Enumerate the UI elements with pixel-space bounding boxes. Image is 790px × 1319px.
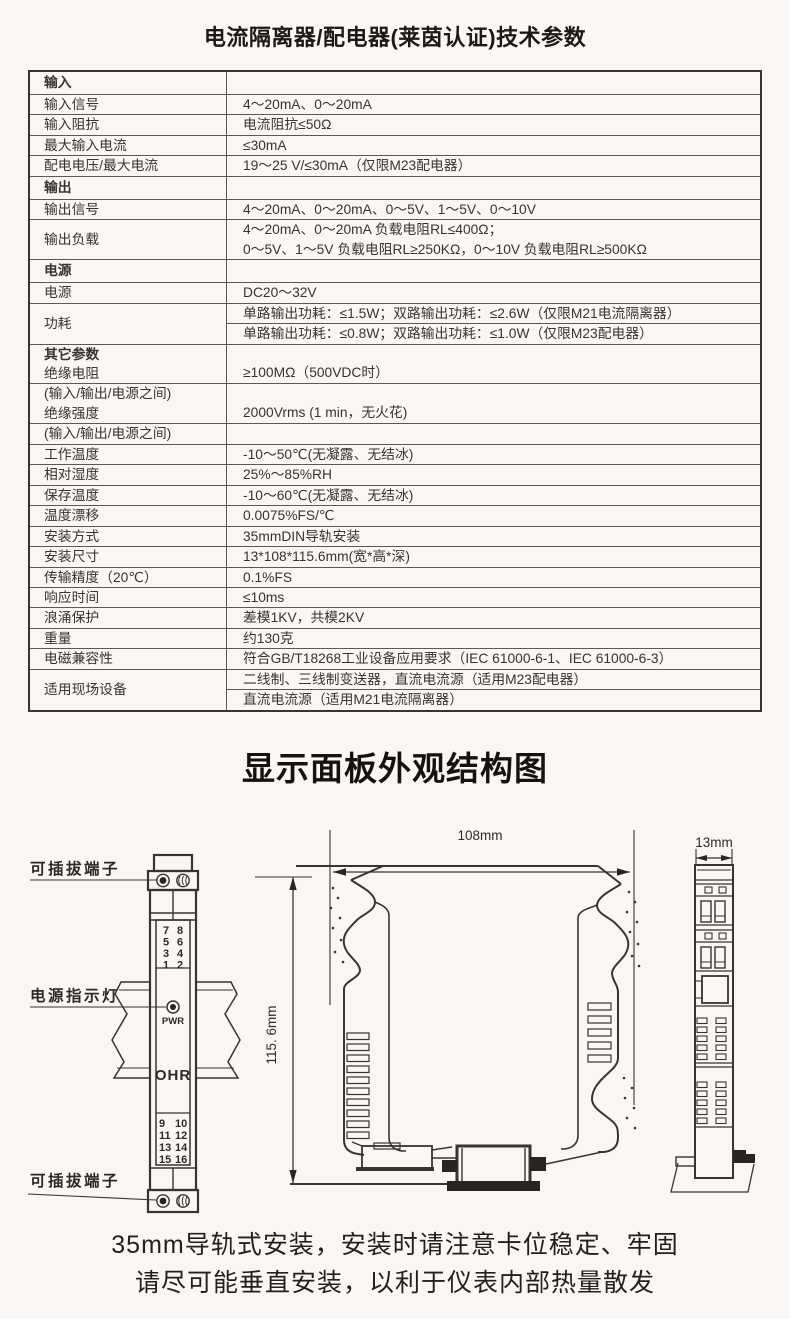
width-dimension-label: 108mm: [457, 828, 502, 843]
spec-label-cell: 浪涌保护: [29, 608, 227, 628]
bottom-terminal-block: [148, 1190, 198, 1212]
label-line: (输入/输出/电源之间): [44, 384, 222, 403]
spec-value-cell: [227, 424, 762, 444]
terminal-number: 2: [177, 960, 183, 972]
spec-value-cell: 二线制、三线制变送器，直流电流源（适用M23配电器）: [227, 669, 762, 689]
diagram-title: 显示面板外观结构图: [0, 742, 790, 790]
install-note-line2: 请尽可能垂直安装，以利于仪表内部热量散发: [0, 1264, 790, 1302]
arrow-right-icon: [617, 868, 630, 876]
terminal-number: 5: [163, 937, 169, 949]
spec-label-cell: 温度漂移: [29, 506, 227, 526]
spec-label-cell: 适用现场设备: [29, 669, 227, 710]
arrow-down-icon: [289, 1170, 296, 1183]
spec-value-cell: 2000Vrms (1 min，无火花): [227, 384, 762, 424]
table-row: 输出: [29, 176, 761, 199]
install-note-line1: 35mm导轨式安装，安装时请注意卡位稳定、牢固: [0, 1226, 790, 1264]
terminal-number: 13: [159, 1142, 171, 1154]
spec-label-cell: 输入阻抗: [29, 115, 227, 135]
terminal-number: 16: [175, 1154, 187, 1166]
table-row: 温度漂移0.0075%FS/℃: [29, 506, 761, 526]
spec-value-cell: 约130克: [227, 628, 762, 648]
terminal-number: 15: [159, 1154, 171, 1166]
pwr-label: PWR: [162, 1016, 184, 1027]
spec-value-cell: 25%～85%RH: [227, 465, 762, 485]
terminal-number: 8: [177, 925, 183, 937]
spec-value-cell: 4～20mA、0～20mA 负载电阻RL≤400Ω；0～5V、1～5V 负载电阻…: [227, 220, 762, 260]
depth-vent-slots: [697, 1018, 726, 1124]
spec-value-cell: 电流阻抗≤50Ω: [227, 115, 762, 135]
depth-dimension-label: 13mm: [695, 835, 733, 850]
terminal-number: 1: [163, 960, 169, 972]
spec-value-cell: -10～60℃(无凝露、无结冰): [227, 485, 762, 505]
spec-label-cell: 输入: [29, 71, 227, 95]
spec-label-cell: 工作温度: [29, 444, 227, 464]
spec-label-cell: 输出信号: [29, 199, 227, 219]
terminal-numbers-top: 7 8 5 6 3 4 1 2: [163, 925, 184, 972]
lower-cell-lines: [150, 1168, 196, 1190]
spec-label-cell: 重量: [29, 628, 227, 648]
arrow-right-icon: [721, 855, 732, 861]
spec-label-cell: 传输精度（20℃）: [29, 567, 227, 587]
spec-value-cell: ≤10ms: [227, 587, 762, 607]
terminal-number: 7: [163, 925, 169, 937]
terminal-number: 12: [175, 1130, 187, 1142]
depth-dimension: [696, 849, 732, 866]
terminal-number: 11: [159, 1130, 171, 1142]
spec-label-cell: (输入/输出/电源之间): [29, 424, 227, 444]
spec-value-cell: 0.0075%FS/℃: [227, 506, 762, 526]
spec-value-cell: 直流电流源（适用M21电流隔离器）: [227, 690, 762, 711]
table-row: 相对湿度25%～85%RH: [29, 465, 761, 485]
value-line: 4～20mA、0～20mA 负载电阻RL≤400Ω；: [243, 220, 756, 239]
table-row: 配电电压/最大电流19～25 V/≤30mA（仅限M23配电器）: [29, 156, 761, 176]
spec-value-cell: DC20～32V: [227, 283, 762, 303]
vent-slots-left: [347, 1033, 369, 1139]
table-row: 输入: [29, 71, 761, 95]
spec-label-cell: 安装方式: [29, 526, 227, 546]
top-cap: [154, 855, 192, 871]
terminal-number: 10: [175, 1118, 187, 1130]
spec-label-cell: 其它参数绝缘电阻: [29, 344, 227, 384]
spec-label-cell: 保存温度: [29, 485, 227, 505]
height-dimension-label: 115. 6mm: [264, 1005, 279, 1064]
spec-label-cell: 输出: [29, 176, 227, 199]
section-label: 其它参数: [44, 345, 222, 364]
table-row: 电源: [29, 260, 761, 283]
spec-value-cell: 4～20mA、0～20mA、0～5V、1～5V、0～10V: [227, 199, 762, 219]
device-body: [150, 890, 196, 1190]
spec-label-cell: 电源: [29, 283, 227, 303]
table-row: 输出负载 4～20mA、0～20mA 负载电阻RL≤400Ω；0～5V、1～5V…: [29, 220, 761, 260]
depth-body: [671, 865, 755, 1192]
table-row: 电源DC20～32V: [29, 283, 761, 303]
top-terminal-label: 可插拔端子: [30, 859, 120, 878]
table-row: 输入阻抗电流阻抗≤50Ω: [29, 115, 761, 135]
spec-label-cell: 功耗: [29, 303, 227, 344]
arrow-up-icon: [289, 877, 296, 890]
spec-value-cell: 13*108*115.6mm(宽*高*深): [227, 547, 762, 567]
table-row: 适用现场设备 二线制、三线制变送器，直流电流源（适用M23配电器）: [29, 669, 761, 689]
spec-label-cell: 响应时间: [29, 587, 227, 607]
table-row: 响应时间≤10ms: [29, 587, 761, 607]
leader-line: [28, 1194, 156, 1200]
label-line: 绝缘强度: [44, 404, 222, 423]
spec-value-cell: -10～50℃(无凝露、无结冰): [227, 444, 762, 464]
bottom-terminal-label: 可插拔端子: [30, 1171, 120, 1190]
spec-value-cell: [227, 176, 762, 199]
rail-clip-tab: [733, 1150, 755, 1163]
front-view-drawing: 可插拔端子 电源指示灯 可插拔端子 7 8 5: [28, 855, 240, 1212]
table-row: 其它参数绝缘电阻 ≥100MΩ（500VDC时）: [29, 344, 761, 384]
terminal-numbers-bottom: 9 10 11 12 13 14 15 16: [159, 1118, 188, 1166]
table-row: (输入/输出/电源之间): [29, 424, 761, 444]
table-row: 重量约130克: [29, 628, 761, 648]
terminal-number: 9: [159, 1118, 165, 1130]
spec-value-cell: 19～25 V/≤30mA（仅限M23配电器）: [227, 156, 762, 176]
spec-label-cell: 配电电压/最大电流: [29, 156, 227, 176]
spec-label-cell: 安装尺寸: [29, 547, 227, 567]
table-row: 功耗 单路输出功耗：≤1.5W；双路输出功耗：≤2.6W（仅限M21电流隔离器）: [29, 303, 761, 323]
spec-value-cell: [227, 260, 762, 283]
spec-label-cell: 输出负载: [29, 220, 227, 260]
side-view-drawing: 108mm 115. 6mm: [255, 828, 640, 1191]
spec-label-cell: 电源: [29, 260, 227, 283]
din-clip: [290, 1142, 602, 1191]
power-led-label: 电源指示灯: [30, 986, 120, 1005]
housing-profile: [296, 866, 628, 1155]
table-row: 输出信号4～20mA、0～20mA、0～5V、1～5V、0～10V: [29, 199, 761, 219]
table-row: 安装尺寸13*108*115.6mm(宽*高*深): [29, 547, 761, 567]
spec-value-cell: 差模1KV，共模2KV: [227, 608, 762, 628]
spec-value-cell: [227, 71, 762, 95]
table-row: 传输精度（20℃）0.1%FS: [29, 567, 761, 587]
upper-cell-lines: [150, 890, 196, 920]
spec-value-cell: 35mmDIN导轨安装: [227, 526, 762, 546]
spec-value-cell: 符合GB/T18268工业设备应用要求（IEC 61000-6-1、IEC 61…: [227, 649, 762, 669]
brand-logo: OHR: [155, 1067, 191, 1084]
table-row: 输入信号4～20mA、0～20mA: [29, 95, 761, 115]
arrow-left-icon: [696, 855, 707, 861]
spec-value-cell: 0.1%FS: [227, 567, 762, 587]
spec-label-cell: 最大输入电流: [29, 135, 227, 155]
vent-slots-right: [588, 1003, 611, 1062]
table-row: 工作温度-10～50℃(无凝露、无结冰): [29, 444, 761, 464]
structure-diagram: 可插拔端子 电源指示灯 可插拔端子 7 8 5: [0, 805, 790, 1219]
spec-value-cell: 单路输出功耗：≤1.5W；双路输出功耗：≤2.6W（仅限M21电流隔离器）: [227, 303, 762, 323]
value-line: 0～5V、1～5V 负载电阻RL≥250KΩ，0～10V 负载电阻RL≥500K…: [243, 240, 756, 259]
screw-terminal-icon: [157, 1195, 189, 1207]
table-row: 保存温度-10～60℃(无凝露、无结冰): [29, 485, 761, 505]
table-row: (输入/输出/电源之间)绝缘强度 2000Vrms (1 min，无火花): [29, 384, 761, 424]
power-led-icon: [167, 1001, 179, 1013]
terminal-number: 3: [163, 948, 169, 960]
screw-terminal-icon: [157, 874, 189, 886]
spec-table: 输入 输入信号4～20mA、0～20mA 输入阻抗电流阻抗≤50Ω 最大输入电流…: [28, 70, 762, 712]
din-rail: [112, 982, 240, 1078]
terminal-number: 6: [177, 937, 183, 949]
spec-label-cell: 相对湿度: [29, 465, 227, 485]
spec-label-cell: 电磁兼容性: [29, 649, 227, 669]
table-row: 安装方式35mmDIN导轨安装: [29, 526, 761, 546]
width-dimension: [330, 830, 634, 1105]
table-row: 最大输入电流≤30mA: [29, 135, 761, 155]
spec-value-cell: ≥100MΩ（500VDC时）: [227, 344, 762, 384]
spec-label-cell: (输入/输出/电源之间)绝缘强度: [29, 384, 227, 424]
terminal-number: 4: [177, 948, 184, 960]
page-title: 电流隔离器/配电器(莱茵认证)技术参数: [0, 20, 790, 52]
table-row: 浪涌保护差模1KV，共模2KV: [29, 608, 761, 628]
spec-label-cell: 输入信号: [29, 95, 227, 115]
spec-value-cell: 4～20mA、0～20mA: [227, 95, 762, 115]
arrow-left-icon: [333, 868, 346, 876]
table-row: 电磁兼容性符合GB/T18268工业设备应用要求（IEC 61000-6-1、I…: [29, 649, 761, 669]
depth-view-drawing: 13mm: [671, 835, 755, 1192]
spec-value-cell: 单路输出功耗：≤0.8W；双路输出功耗：≤1.0W（仅限M23配电器）: [227, 324, 762, 344]
spec-value-cell: ≤30mA: [227, 135, 762, 155]
terminal-number: 14: [175, 1142, 188, 1154]
install-note: 35mm导轨式安装，安装时请注意卡位稳定、牢固 请尽可能垂直安装，以利于仪表内部…: [0, 1226, 790, 1302]
label-line: 绝缘电阻: [44, 364, 222, 383]
